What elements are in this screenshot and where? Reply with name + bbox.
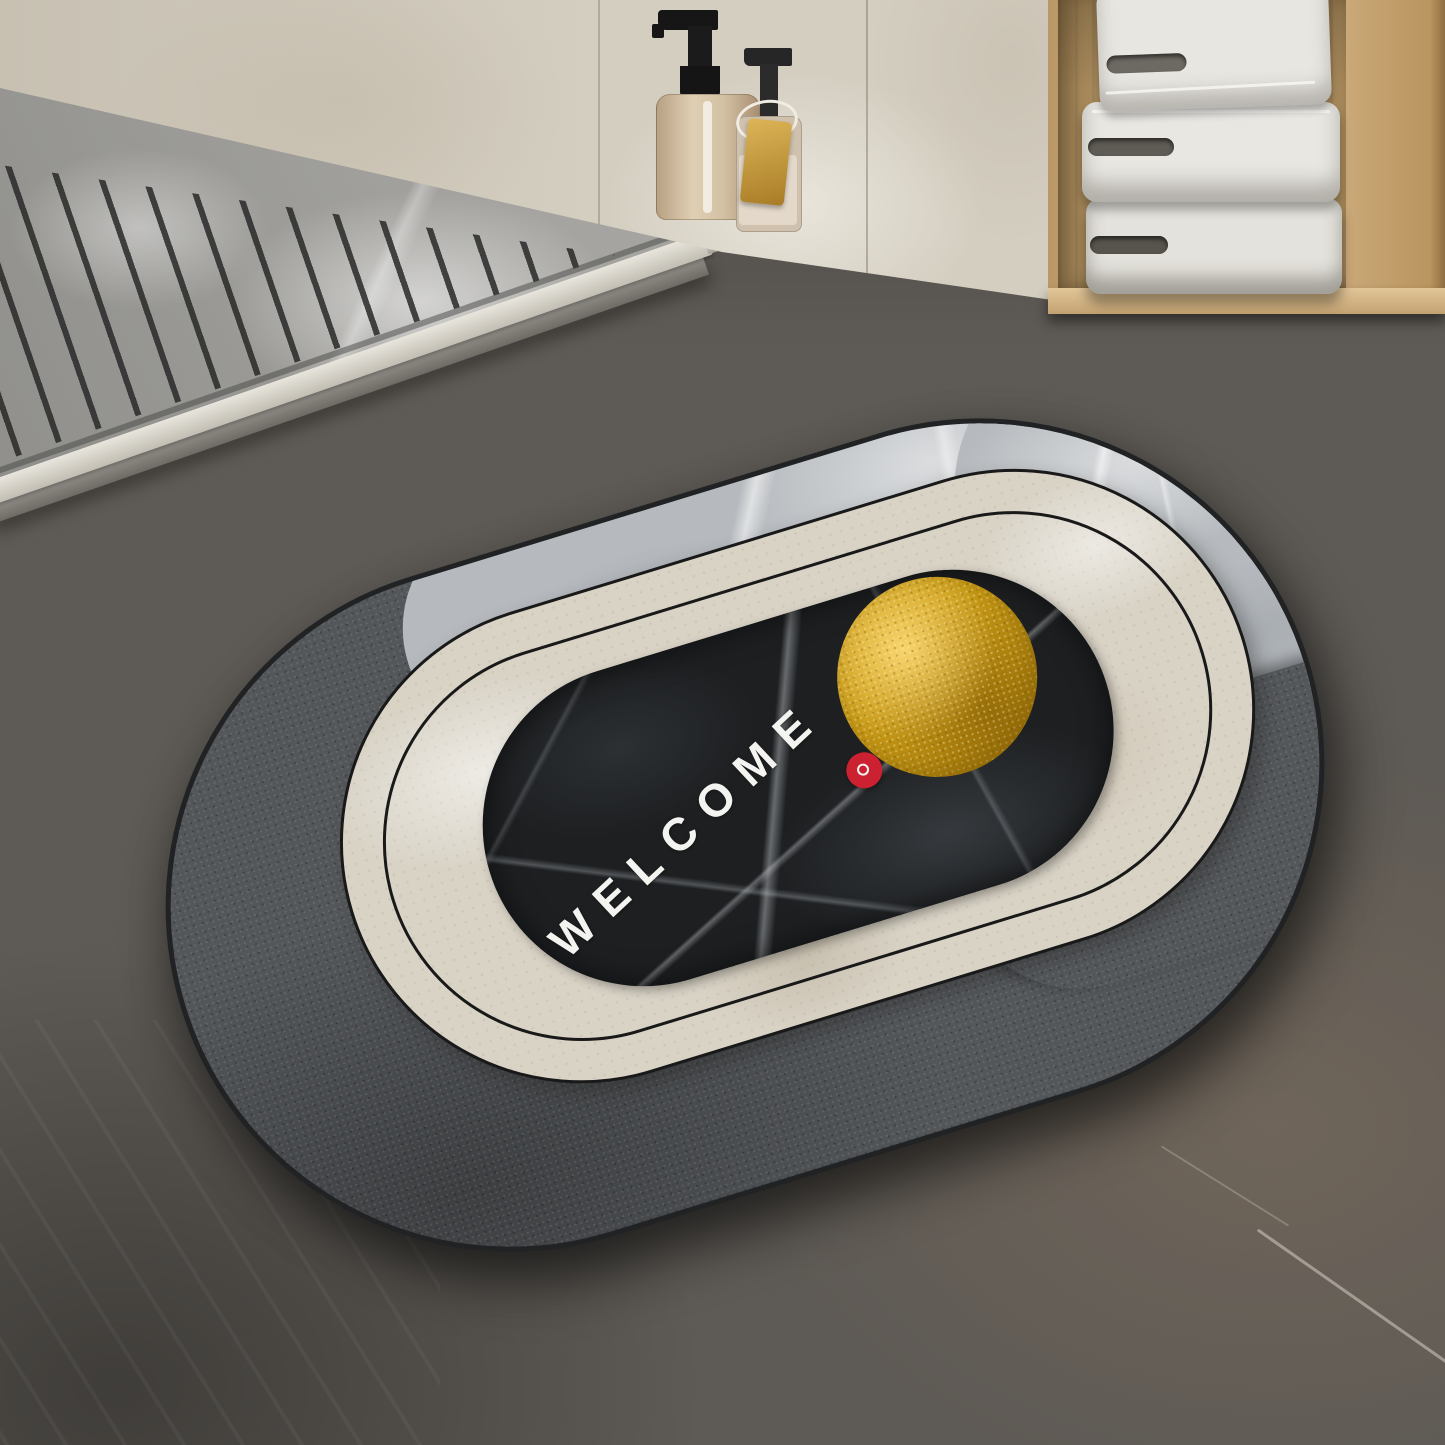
niche-right-panel: [1346, 0, 1445, 314]
towel-fold-slot: [1090, 236, 1168, 254]
towel-fold-slot: [1106, 53, 1187, 74]
towel-piping: [1105, 81, 1315, 95]
folded-towel: [1096, 0, 1332, 112]
soap-dip-tube: [703, 101, 712, 213]
floor-marble-vein: [1161, 1145, 1289, 1226]
wall-tile-seam: [866, 0, 868, 298]
gold-gift-tag: [740, 118, 793, 206]
floor-marble-vein: [1257, 1229, 1445, 1375]
towel-stack: [1070, 0, 1360, 310]
red-dot-logo-mark: [856, 762, 871, 777]
soap-pump-spout-tip: [652, 24, 664, 38]
soap-pump-shaft: [688, 26, 712, 70]
wall-tile-seam: [598, 0, 600, 225]
folded-towel: [1082, 102, 1340, 202]
bathroom-scene: WELCOME: [0, 0, 1445, 1445]
folded-towel: [1086, 198, 1342, 294]
towel-fold-slot: [1088, 138, 1174, 156]
